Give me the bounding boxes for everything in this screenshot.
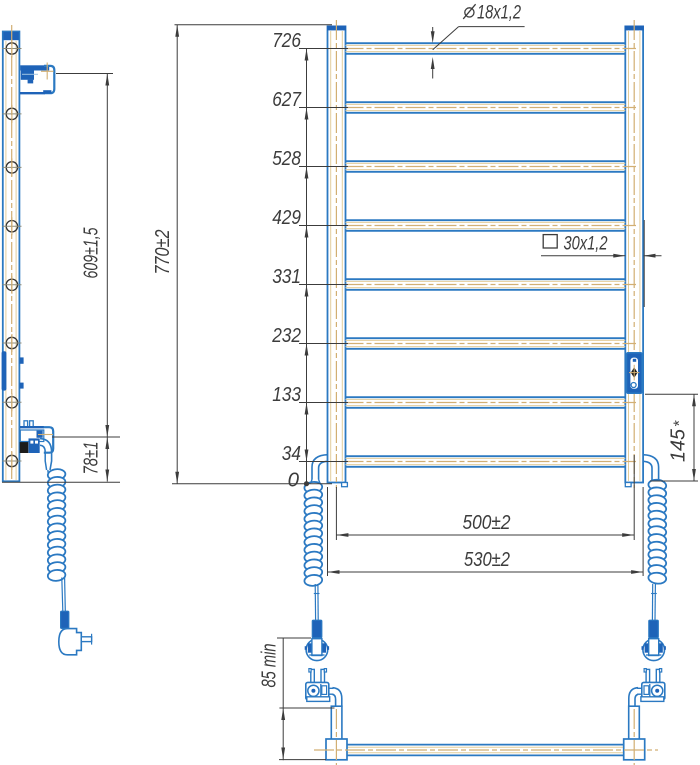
- svg-text:528: 528: [272, 147, 301, 170]
- svg-text:34: 34: [282, 442, 301, 465]
- svg-text:500±2: 500±2: [463, 511, 512, 534]
- svg-text:429: 429: [272, 206, 301, 229]
- svg-text:85 min: 85 min: [258, 644, 281, 688]
- svg-text:18x1,2: 18x1,2: [477, 2, 521, 24]
- svg-text:30x1,2: 30x1,2: [564, 233, 608, 255]
- svg-text:726: 726: [272, 29, 301, 52]
- svg-text:*: *: [672, 420, 689, 427]
- svg-text:627: 627: [272, 88, 302, 111]
- svg-text:530±2: 530±2: [464, 548, 510, 571]
- svg-text:78±1: 78±1: [80, 442, 103, 475]
- svg-text:770±2: 770±2: [151, 229, 174, 274]
- svg-text:331: 331: [272, 265, 301, 288]
- svg-text:0: 0: [288, 469, 300, 492]
- svg-text:609±1,5: 609±1,5: [80, 227, 103, 278]
- svg-text:232: 232: [271, 324, 301, 347]
- svg-text:145: 145: [667, 428, 690, 462]
- svg-text:133: 133: [272, 383, 301, 406]
